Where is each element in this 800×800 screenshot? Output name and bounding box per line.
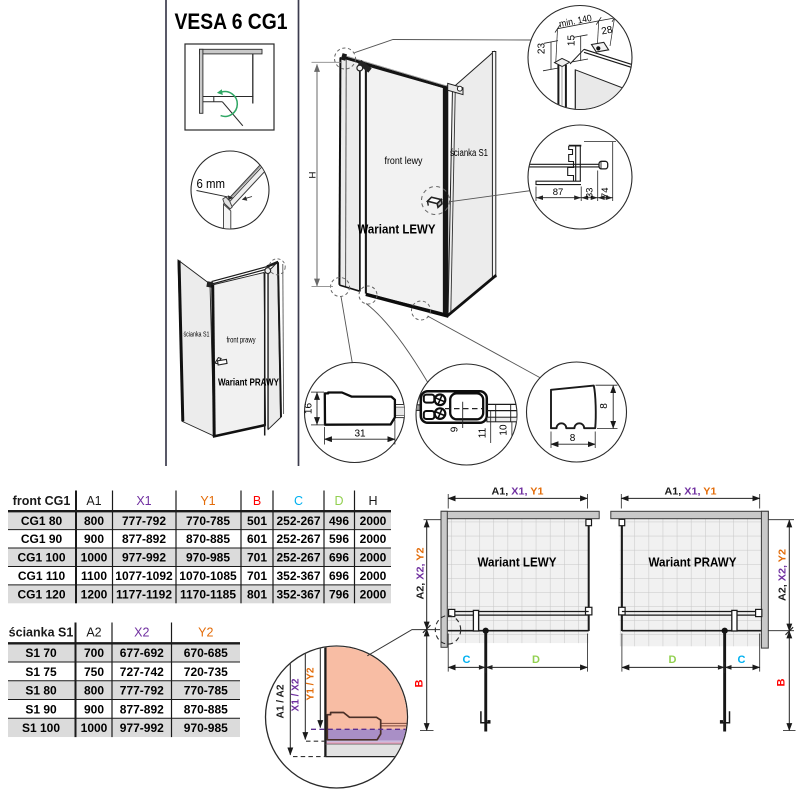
svg-text:H: H [368,494,377,508]
svg-text:16: 16 [304,403,315,415]
svg-text:Wariant PRAWY: Wariant PRAWY [649,556,738,570]
svg-text:A1 / A2: A1 / A2 [276,684,287,718]
svg-text:2000: 2000 [360,532,387,546]
svg-text:S1 80: S1 80 [25,684,57,698]
svg-text:601: 601 [247,532,267,546]
svg-text:front prawy: front prawy [227,336,256,345]
svg-text:900: 900 [84,702,104,716]
svg-text:777-792: 777-792 [120,684,164,698]
svg-text:352-367: 352-367 [276,569,320,583]
svg-text:C: C [463,654,471,666]
svg-text:X1 / X2: X1 / X2 [291,678,302,711]
svg-text:CG1 120: CG1 120 [17,588,65,602]
svg-text:1000: 1000 [81,551,108,565]
svg-text:870-885: 870-885 [186,532,230,546]
svg-text:9: 9 [450,426,461,432]
svg-text:A2, X2, Y2: A2, X2, Y2 [414,547,426,599]
svg-text:977-992: 977-992 [122,551,166,565]
svg-text:677-692: 677-692 [120,646,164,660]
svg-text:Wariant LEWY: Wariant LEWY [358,223,437,237]
svg-text:8: 8 [599,403,610,409]
svg-text:696: 696 [329,569,349,583]
svg-text:970-985: 970-985 [186,551,230,565]
svg-text:ścianka S1: ścianka S1 [184,332,210,339]
svg-text:900: 900 [84,532,104,546]
svg-text:352-367: 352-367 [276,588,320,602]
svg-text:252-267: 252-267 [276,514,320,528]
svg-text:D: D [669,654,677,666]
svg-text:8: 8 [570,433,576,444]
svg-text:D: D [334,494,343,508]
svg-text:870-885: 870-885 [184,702,228,716]
svg-text:D: D [532,654,540,666]
svg-text:VESA 6 CG1: VESA 6 CG1 [175,9,288,34]
svg-text:1000: 1000 [81,721,108,735]
svg-text:696: 696 [329,551,349,565]
svg-text:Y2: Y2 [198,626,213,640]
svg-text:877-892: 877-892 [122,532,166,546]
svg-text:1100: 1100 [81,569,107,583]
svg-text:CG1 90: CG1 90 [21,532,63,546]
svg-text:A1: A1 [86,494,101,508]
svg-text:Y1: Y1 [200,494,215,508]
svg-text:B: B [253,494,261,508]
svg-text:701: 701 [247,551,267,565]
svg-text:750: 750 [84,665,104,679]
svg-text:CG1 110: CG1 110 [18,569,66,583]
svg-text:700: 700 [84,646,104,660]
svg-text:796: 796 [329,588,349,602]
svg-text:H: H [308,171,319,178]
svg-text:6 mm: 6 mm [197,177,226,191]
svg-text:A1, X1, Y1: A1, X1, Y1 [665,486,717,498]
svg-text:front lewy: front lewy [385,156,423,167]
svg-text:33: 33 [585,188,596,199]
svg-text:877-892: 877-892 [120,702,164,716]
svg-text:596: 596 [329,532,349,546]
svg-text:C: C [738,654,746,666]
svg-text:970-985: 970-985 [184,721,228,735]
svg-text:800: 800 [84,684,104,698]
svg-text:2000: 2000 [360,514,387,528]
svg-text:B: B [414,679,426,687]
svg-text:Y1 / Y2: Y1 / Y2 [306,667,317,700]
svg-text:74: 74 [600,188,611,199]
svg-text:977-992: 977-992 [120,721,164,735]
svg-text:87: 87 [553,187,564,198]
svg-text:ścianka S1: ścianka S1 [9,626,74,640]
svg-text:X2: X2 [134,626,149,640]
svg-text:720-735: 720-735 [184,665,228,679]
svg-text:X1: X1 [136,494,151,508]
svg-text:11: 11 [477,427,488,438]
svg-text:A1, X1, Y1: A1, X1, Y1 [492,486,544,498]
svg-text:S1 70: S1 70 [25,646,57,660]
svg-text:2000: 2000 [360,551,387,565]
svg-text:31: 31 [354,429,366,440]
svg-text:Wariant LEWY: Wariant LEWY [478,556,558,570]
svg-text:1200: 1200 [81,588,108,602]
svg-text:15: 15 [567,35,578,47]
svg-text:501: 501 [247,514,267,528]
svg-text:770-785: 770-785 [184,684,228,698]
svg-text:Wariant PRAWY: Wariant PRAWY [218,377,279,389]
svg-text:A2, X2, Y2: A2, X2, Y2 [776,549,788,601]
svg-text:770-785: 770-785 [186,514,230,528]
svg-text:1177-1192: 1177-1192 [116,588,172,602]
svg-text:S1 90: S1 90 [25,702,57,716]
svg-text:801: 801 [247,588,267,602]
svg-text:S1 100: S1 100 [22,721,60,735]
svg-text:S1 75: S1 75 [25,665,57,679]
svg-text:10: 10 [499,424,510,436]
svg-text:1077-1092: 1077-1092 [115,569,173,583]
svg-text:2000: 2000 [360,588,387,602]
svg-text:CG1 100: CG1 100 [17,551,65,565]
svg-text:CG1 80: CG1 80 [21,514,63,528]
svg-text:701: 701 [247,569,267,583]
svg-text:496: 496 [329,514,349,528]
svg-text:C: C [294,494,303,508]
svg-text:2000: 2000 [360,569,387,583]
svg-text:23: 23 [537,43,548,55]
svg-text:777-792: 777-792 [122,514,166,528]
svg-text:727-742: 727-742 [120,665,164,679]
svg-text:800: 800 [84,514,104,528]
svg-text:A2: A2 [86,626,101,640]
svg-text:1170-1185: 1170-1185 [180,588,236,602]
svg-text:B: B [776,678,788,686]
svg-text:670-685: 670-685 [184,646,228,660]
svg-text:252-267: 252-267 [276,532,320,546]
svg-text:ścianka S1: ścianka S1 [450,148,488,159]
svg-text:front CG1: front CG1 [13,494,71,508]
svg-text:1070-1085: 1070-1085 [179,569,237,583]
svg-text:252-267: 252-267 [276,551,320,565]
